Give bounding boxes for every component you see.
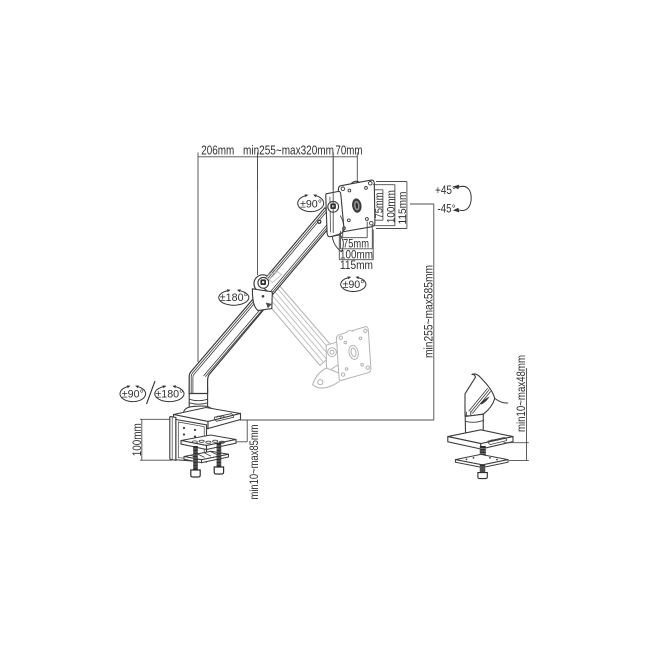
svg-text:min10~max85mm: min10~max85mm — [247, 424, 261, 499]
svg-text:min10~max48mm: min10~max48mm — [514, 355, 528, 432]
svg-text:206mm: 206mm — [201, 144, 234, 158]
svg-text:±90°: ±90° — [122, 388, 144, 400]
svg-text:+45°: +45° — [435, 183, 456, 197]
svg-text:±90°: ±90° — [343, 279, 365, 291]
svg-text:75mm: 75mm — [373, 193, 385, 219]
svg-text:-45°: -45° — [438, 202, 456, 216]
svg-text:±180°: ±180° — [155, 388, 183, 400]
svg-text:±90°: ±90° — [300, 198, 322, 210]
svg-text:min255~max585mm: min255~max585mm — [421, 265, 435, 358]
svg-text:70mm: 70mm — [336, 144, 363, 158]
svg-text:±180°: ±180° — [220, 292, 248, 304]
svg-text:115mm: 115mm — [397, 192, 409, 225]
svg-text:115mm: 115mm — [340, 258, 373, 272]
svg-text:100mm: 100mm — [385, 190, 397, 223]
svg-text:min255~max320mm: min255~max320mm — [243, 144, 334, 158]
svg-text:100mm: 100mm — [130, 423, 144, 456]
